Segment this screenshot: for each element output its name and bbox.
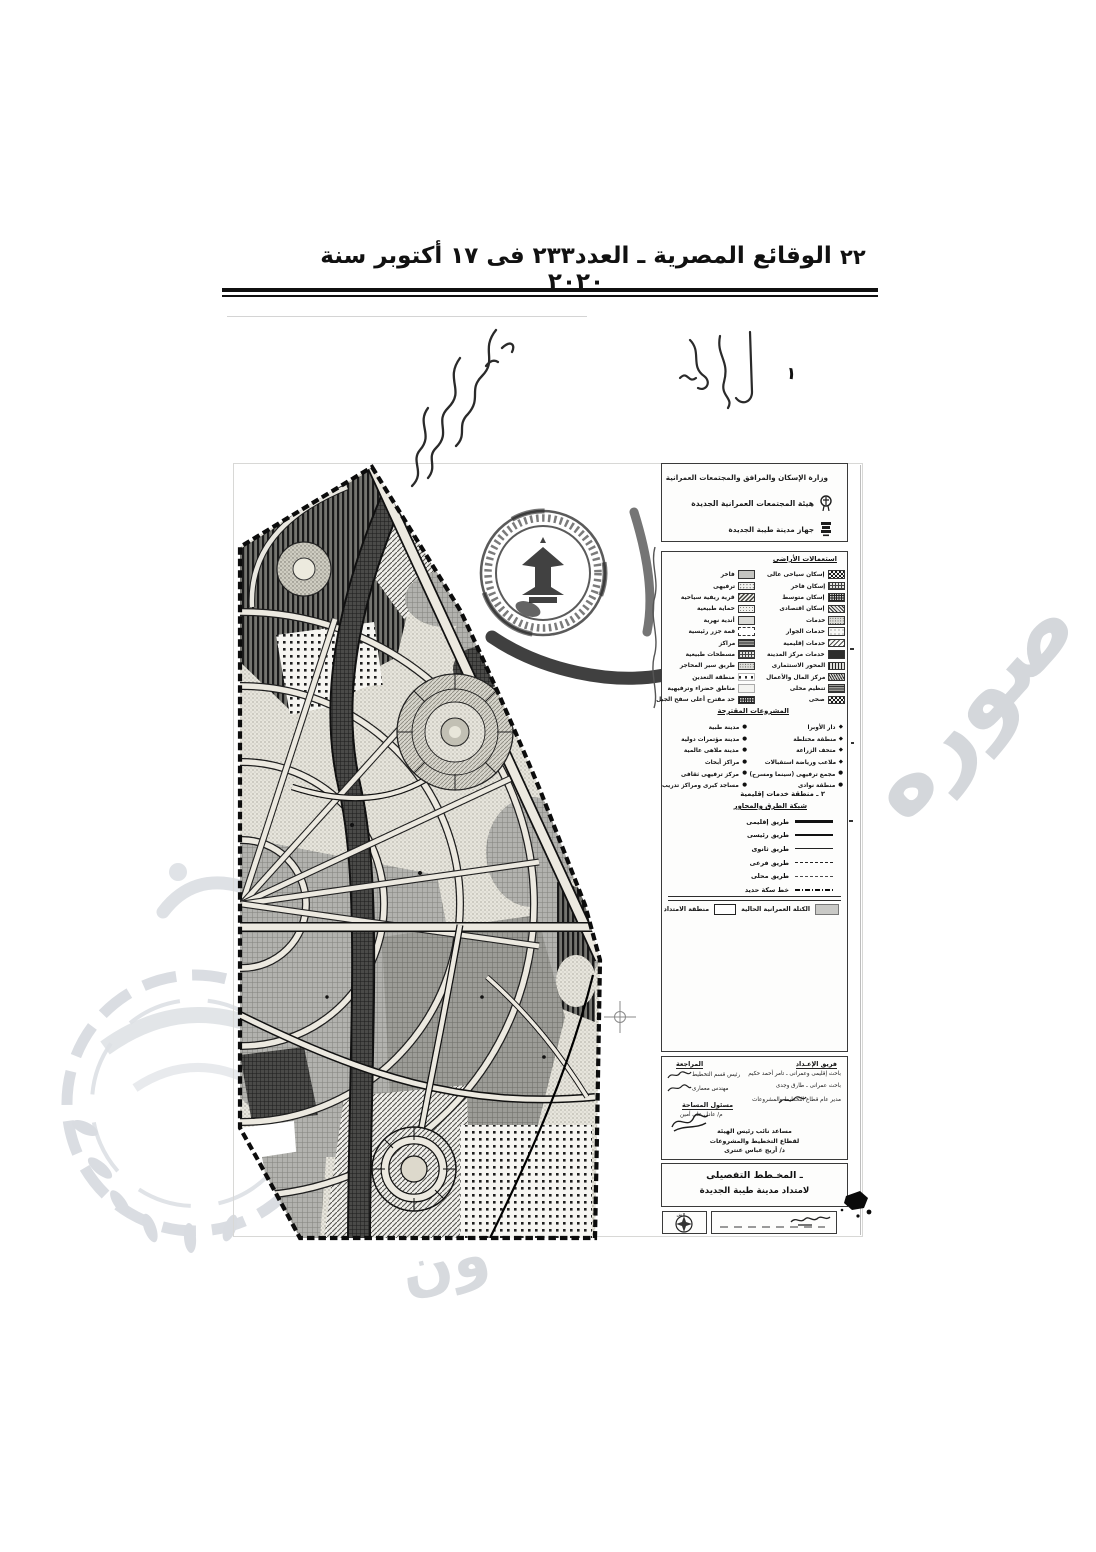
dot-bullet-icon: ● [838, 783, 843, 789]
ink-blot [838, 1188, 874, 1224]
landuse-swatch [738, 627, 755, 636]
legend-item: إسكان اقتصادى [757, 603, 845, 614]
legend-item: طريق سير المحاجر [662, 660, 755, 671]
legend-item: مراكز [662, 637, 755, 648]
scale-handwriting [788, 1213, 832, 1227]
landuse-swatch [738, 616, 755, 625]
landuse-swatch [738, 582, 755, 591]
project-item: ◆متحف الزراعة [749, 745, 843, 757]
dot-bullet-icon: ● [742, 748, 747, 754]
map-title-line2: لامتداد مدينة طيبة الجديدة [662, 1186, 847, 1196]
dot-bullet-icon: ● [742, 771, 747, 777]
project-item: ●مدينة مؤتمرات دولية [663, 734, 747, 746]
header-rule-thin [222, 295, 878, 297]
landuse-swatch [828, 616, 845, 625]
landuse-swatch [738, 639, 755, 648]
legend-item: قرية ريفية سياحية [662, 592, 755, 603]
stamp-eagle-icon [522, 537, 564, 603]
approval-line: د/ أريج عباس عنترى [696, 1146, 813, 1156]
legend-item: فاخر [662, 569, 755, 580]
header-rule-thick [222, 288, 878, 292]
landuse-swatch [828, 673, 845, 682]
dot-bullet-icon: ● [742, 760, 747, 766]
landuse-swatch [828, 627, 845, 636]
scan-speck [851, 742, 854, 744]
legend-item: خدمات مركز المدينة [757, 649, 845, 660]
gazette-page: الوقائع المصرية ـ العدد٢٣٣ فى ١٧ أكتوبر … [0, 0, 1096, 1552]
review-header: المراجعة [676, 1060, 703, 1069]
legend-item: حماية طبيعية [662, 603, 755, 614]
landuse-swatch [828, 684, 845, 693]
road-legend-item: طريق محلى [693, 869, 833, 883]
page-number: ٢٢ [840, 245, 866, 269]
landuse-swatch [738, 605, 755, 614]
project-item: ●مجمع ترفيهى (سينما ومسرح) [749, 768, 843, 780]
landuse-swatch [828, 570, 845, 579]
road-legend-item: طريق إقليمى [693, 815, 833, 829]
legend-item: منطقة التعدين [662, 672, 755, 683]
sheet-right-edge [860, 465, 861, 1235]
road-legend-item: طريق فرعى [693, 856, 833, 870]
road-line-sample [795, 862, 833, 863]
signature-scribble [666, 1083, 692, 1095]
legend-item: خدمات إقليمية [757, 637, 845, 648]
legend-item: صحى [757, 694, 845, 705]
approval-block: مساعد نائب رئيس الهيئة لقطاع التخطيط وال… [696, 1127, 813, 1156]
authority-name: هيئة المجتمعات العمرانية الجديدة [691, 499, 814, 508]
signature-scribble [666, 1069, 692, 1081]
map-title-box: ـ المخـطط التفصيلى لامتداد مدينة طيبة ال… [661, 1163, 848, 1207]
handwritten-note-right [672, 326, 782, 414]
road-line-sample [795, 848, 833, 849]
dot-bullet-icon: ● [742, 783, 747, 789]
legend-item: المحور الاستثمارى [757, 660, 845, 671]
road-line-sample [795, 834, 833, 836]
compass-rose-icon: ش [663, 1212, 706, 1233]
scan-edge-line [227, 316, 587, 317]
project-item: ◆ملاعب ورياضة استقبالات [749, 757, 843, 769]
landuse-swatch [738, 696, 755, 705]
south-roundabout [372, 1127, 456, 1211]
existing-urban-row: الكتلة العمرانية الحالية منطقة الامتداد [664, 904, 839, 915]
landuse-column-left: فاخر ترفيهى قرية ريفية سياحية حماية طبيع… [662, 569, 755, 706]
diamond-bullet-icon: ◆ [839, 760, 843, 766]
project-item: ●مركز ترفيهى ثقافى [663, 768, 747, 780]
road-line-sample [795, 820, 833, 823]
ink-smudge [492, 637, 662, 678]
landuse-swatch [738, 593, 755, 602]
existing-urban-swatch [815, 904, 839, 915]
dot-bullet-icon: ● [742, 737, 747, 743]
road-line-sample [795, 889, 833, 892]
dot-bullet-icon: ● [742, 725, 747, 731]
project-item: ◆دار الأوبرا [749, 722, 843, 734]
city-logo-icon [819, 521, 833, 537]
master-plan-map [232, 457, 662, 1247]
registration-mark [604, 1001, 636, 1033]
legend-item: إسكان فاخر [757, 580, 845, 591]
diamond-bullet-icon: ◆ [839, 748, 843, 754]
landuse-title: استعمالات الأراضى [773, 555, 837, 563]
extension-area-label: منطقة الامتداد [664, 906, 710, 913]
landuse-swatch [828, 605, 845, 614]
approval-line: لقطاع التخطيط والمشروعات [696, 1137, 813, 1147]
prep-team-header: فريق الإعـداد [796, 1060, 837, 1069]
landuse-column-right: إسكان سياحى عالى إسكان فاخر إسكان متوسط … [757, 569, 845, 706]
legend-item: مسطحات طبيعية [662, 649, 755, 660]
legend-item: إسكان متوسط [757, 592, 845, 603]
landuse-swatch [738, 662, 755, 671]
project-item: ●مساجد كبرى ومراكز تدريب [663, 780, 747, 792]
legend-divider [668, 896, 841, 901]
legend-item: خدمات [757, 615, 845, 626]
compass-north-letter: ش [677, 1213, 683, 1218]
agency-panel: وزارة الإسكان والمرافق والمجتمعات العمرا… [661, 463, 848, 542]
legend-item: حد مقترح أعلى سفح الجبل [662, 694, 755, 705]
scan-speck [849, 820, 853, 822]
watermark-text: صوره [838, 568, 1096, 840]
diamond-bullet-icon: ◆ [839, 737, 843, 743]
landuse-swatch [738, 684, 755, 693]
map-title-line1: ـ المخـطط التفصيلى [662, 1170, 847, 1181]
projects-column-right: ◆دار الأوبرا ◆منطقة مختلطة ◆متحف الزراعة… [749, 722, 843, 792]
diamond-bullet-icon: ◆ [839, 725, 843, 731]
road-line-sample [795, 876, 833, 877]
dot-bullet-icon: ● [838, 771, 843, 777]
landuse-swatch [828, 662, 845, 671]
legend-item: إسكان سياحى عالى [757, 569, 845, 580]
approval-line: مساعد نائب رئيس الهيئة [696, 1127, 813, 1137]
legend-item: تنظيم محلى [757, 683, 845, 694]
landuse-swatch [738, 673, 755, 682]
city-agency-name: جهاز مدينة طيبة الجديدة [729, 525, 814, 534]
official-stamp [456, 486, 631, 661]
signature-line: مهندس معمارى [692, 1086, 729, 1092]
legend-item: أندية نهرية [662, 615, 755, 626]
project-item: ●مدينة طبية [663, 722, 747, 734]
landuse-swatch [738, 570, 755, 579]
landuse-swatch [738, 650, 755, 659]
project-item: ◆منطقة مختلطة [749, 734, 843, 746]
signature-line: باحث إقليمى وعمرانى ـ تامر أحمد حكيم [748, 1071, 841, 1077]
landuse-swatch [828, 593, 845, 602]
project-item: ●مدينة ملاهى عالمية [663, 745, 747, 757]
legend-item: مناطق خضراء وترفيهية [662, 683, 755, 694]
regional-services-note: ٢ ـ منطقة خدمات إقليمية [740, 790, 825, 798]
signature-scribble [777, 1093, 807, 1107]
legend-panel: استعمالات الأراضى إسكان سياحى عالى إسكان… [661, 551, 848, 1052]
existing-urban-label: الكتلة العمرانية الحالية [741, 906, 810, 913]
road-legend-item: طريق ثانوى [693, 842, 833, 856]
legend-item: مركز المال والأعمال [757, 672, 845, 683]
signature-line: باحث عمرانى ـ طارق وجدى [776, 1083, 841, 1089]
signature-line: رئيس قسم التخطيط [692, 1072, 740, 1078]
scale-box [711, 1211, 837, 1234]
projects-column-left: ●مدينة طبية ●مدينة مؤتمرات دولية ●مدينة … [663, 722, 747, 792]
compass-box: ش [662, 1211, 707, 1234]
roads-title: شبكة الطرق والمحاور [734, 802, 807, 810]
projects-title: المشروعات المقترحة [717, 707, 789, 715]
agency-row-ministry: وزارة الإسكان والمرافق والمجتمعات العمرا… [662, 464, 847, 490]
landuse-swatch [828, 639, 845, 648]
road-legend-item: خط سكة حديد [693, 883, 833, 897]
landuse-swatch [828, 582, 845, 591]
landuse-swatch [828, 650, 845, 659]
landuse-swatch [828, 696, 845, 705]
legend-item: ترفيهى [662, 580, 755, 591]
extension-area-swatch [714, 904, 736, 915]
legend-item: خدمات الجوار [757, 626, 845, 637]
signature-panel: فريق الإعـداد المراجعة باحث إقليمى وعمرا… [661, 1056, 848, 1160]
authority-logo-icon [819, 495, 833, 511]
agency-row-city: جهاز مدينة طيبة الجديدة [662, 516, 847, 542]
ministry-name: وزارة الإسكان والمرافق والمجتمعات العمرا… [666, 473, 828, 482]
margin-scribble [648, 545, 662, 710]
roads-column: طريق إقليمى طريق رئيسى طريق ثانوى طريق ف… [693, 815, 833, 897]
agency-row-authority: هيئة المجتمعات العمرانية الجديدة [662, 490, 847, 516]
project-item: ●مراكز أبحاث [663, 757, 747, 769]
handwritten-mark: ١ [785, 363, 798, 384]
legend-item: قمة جزر رئيسية [662, 626, 755, 637]
scan-speck [850, 648, 854, 650]
road-legend-item: طريق رئيسى [693, 829, 833, 843]
